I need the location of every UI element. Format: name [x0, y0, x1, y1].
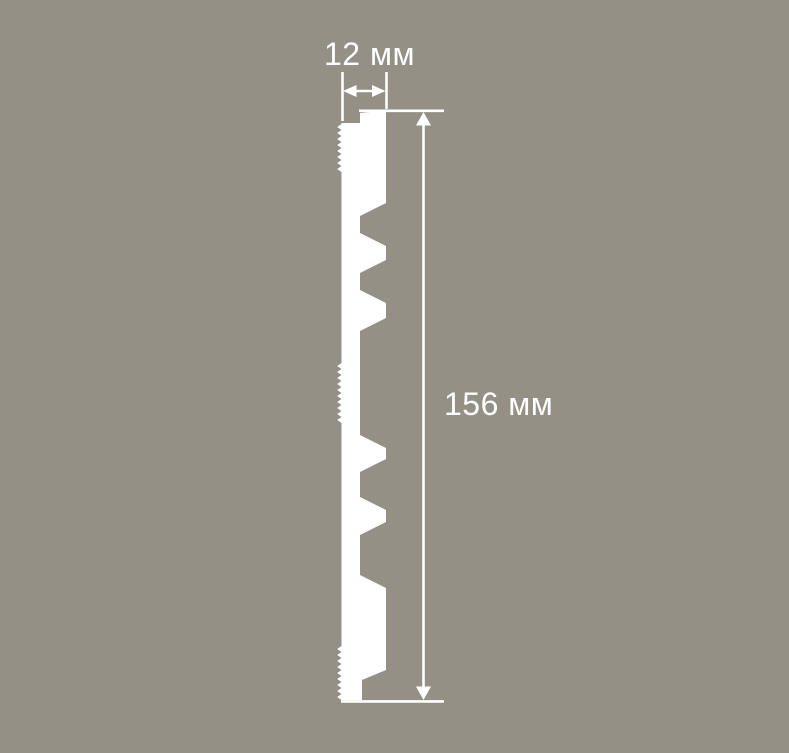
arrow-down-icon — [416, 687, 431, 701]
profile-drawing — [0, 0, 789, 753]
height-dimension-label: 156 мм — [444, 386, 553, 423]
arrow-right-icon — [372, 85, 386, 97]
width-dimension-label: 12 мм — [324, 36, 415, 73]
arrow-left-icon — [343, 85, 357, 97]
diagram-canvas: 12 мм 156 мм — [0, 0, 789, 753]
arrow-up-icon — [416, 112, 431, 126]
panel-profile-shape — [337, 111, 386, 701]
